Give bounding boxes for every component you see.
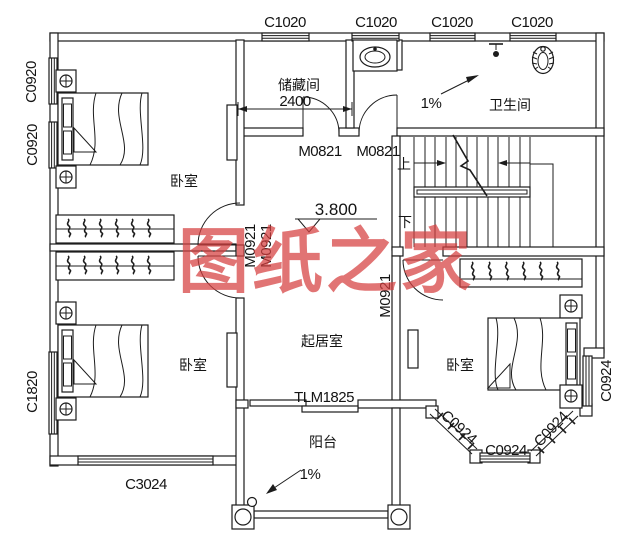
- window-c1820: [49, 352, 57, 434]
- balcony-column-left: [235, 509, 251, 525]
- pier-bedroom3: [408, 330, 418, 368]
- room-label-bedroom3: 卧室: [446, 357, 474, 373]
- room-label-balcony: 阳台: [309, 434, 337, 450]
- floor-plan: C1020 C1020 C1020 C1020 C0920 C0920 C182…: [0, 0, 640, 536]
- door-label-m0921-a: M0921: [242, 224, 259, 268]
- stair-arrow-left: [498, 160, 507, 166]
- balcony-drain: [248, 498, 257, 507]
- stair-handrail: [414, 187, 530, 197]
- balcony-slope-value: 1%: [300, 466, 321, 483]
- window-label-c0924-3: C0924: [531, 408, 572, 450]
- wardrobe-bedroom1: [56, 215, 174, 243]
- stair-down-label: 下: [398, 214, 412, 230]
- stair-treads-lower: [414, 197, 530, 247]
- window-c0924-right: [583, 356, 592, 406]
- squat-toilet: [532, 47, 554, 74]
- floor-drain-icon: [489, 44, 503, 57]
- elevation-marker: [295, 219, 377, 232]
- stair-treads-upper: [414, 137, 530, 187]
- room-label-storage: 储藏间: [278, 77, 320, 93]
- storage-dimension-value: 2400: [279, 93, 311, 110]
- door-bedroom1: [198, 203, 240, 245]
- window-c1020-4: [510, 33, 556, 41]
- balcony-railing: [254, 511, 388, 518]
- sink: [353, 40, 397, 71]
- door-bedroom3: [403, 260, 443, 300]
- elevation-value: 3.800: [315, 200, 358, 219]
- bed-bedroom3: [488, 295, 582, 408]
- window-label-c3024: C3024: [125, 476, 167, 493]
- window-label-c0924-2: C0924: [485, 442, 527, 459]
- staircase: [414, 135, 553, 247]
- floor-plan-drawing: C1020 C1020 C1020 C1020 C0920 C0920 C182…: [0, 0, 640, 536]
- window-label-c1820: C1820: [24, 371, 41, 413]
- window-label-c1020-1: C1020: [264, 14, 306, 31]
- stair-up-label: 上: [397, 156, 411, 172]
- window-c3024: [78, 456, 213, 465]
- bed-bedroom2: [56, 302, 148, 420]
- bathroom-slope-value: 1%: [421, 95, 442, 112]
- window-label-c0920-lower: C0920: [24, 124, 41, 166]
- window-label-c0920-upper: C0920: [23, 61, 40, 103]
- window-c0920-lower: [49, 122, 57, 168]
- wardrobe-bedroom2: [56, 252, 174, 280]
- door-label-m0921-c: M0921: [377, 274, 394, 318]
- door-bathroom: [359, 95, 397, 133]
- bathroom-slope-arrow: [441, 75, 479, 94]
- window-label-c1020-4: C1020: [511, 14, 553, 31]
- stairwell-edge: [530, 164, 553, 247]
- balcony-structure: [232, 498, 410, 530]
- balcony-column-right: [391, 509, 407, 525]
- closet-strip-bedroom2: [227, 333, 237, 387]
- east-wall: [596, 33, 604, 353]
- room-label-bedroom2: 卧室: [179, 357, 207, 373]
- stair-arrow-right: [437, 160, 446, 166]
- window-c1020-1: [262, 33, 309, 41]
- door-label-m0921-b: M0921: [258, 224, 275, 268]
- window-label-c1020-3: C1020: [431, 14, 473, 31]
- door-label-m0821-storage: M0821: [298, 143, 342, 160]
- door-label-m0821-bath: M0821: [356, 143, 400, 160]
- window-c1020-3: [430, 33, 475, 41]
- wardrobe-bedroom3: [460, 259, 582, 287]
- window-label-c1020-2: C1020: [355, 14, 397, 31]
- door-bedroom2: [198, 256, 240, 298]
- room-label-bedroom1: 卧室: [170, 173, 198, 189]
- bed-bedroom1: [56, 70, 148, 188]
- window-label-c0924-4: C0924: [598, 360, 615, 402]
- closet-strip-bedroom1: [227, 105, 237, 160]
- room-label-bathroom: 卫生间: [489, 97, 531, 113]
- room-label-living: 起居室: [301, 333, 343, 349]
- door-label-tlm1825: TLM1825: [294, 389, 354, 406]
- balcony-slope-arrow: [266, 470, 301, 494]
